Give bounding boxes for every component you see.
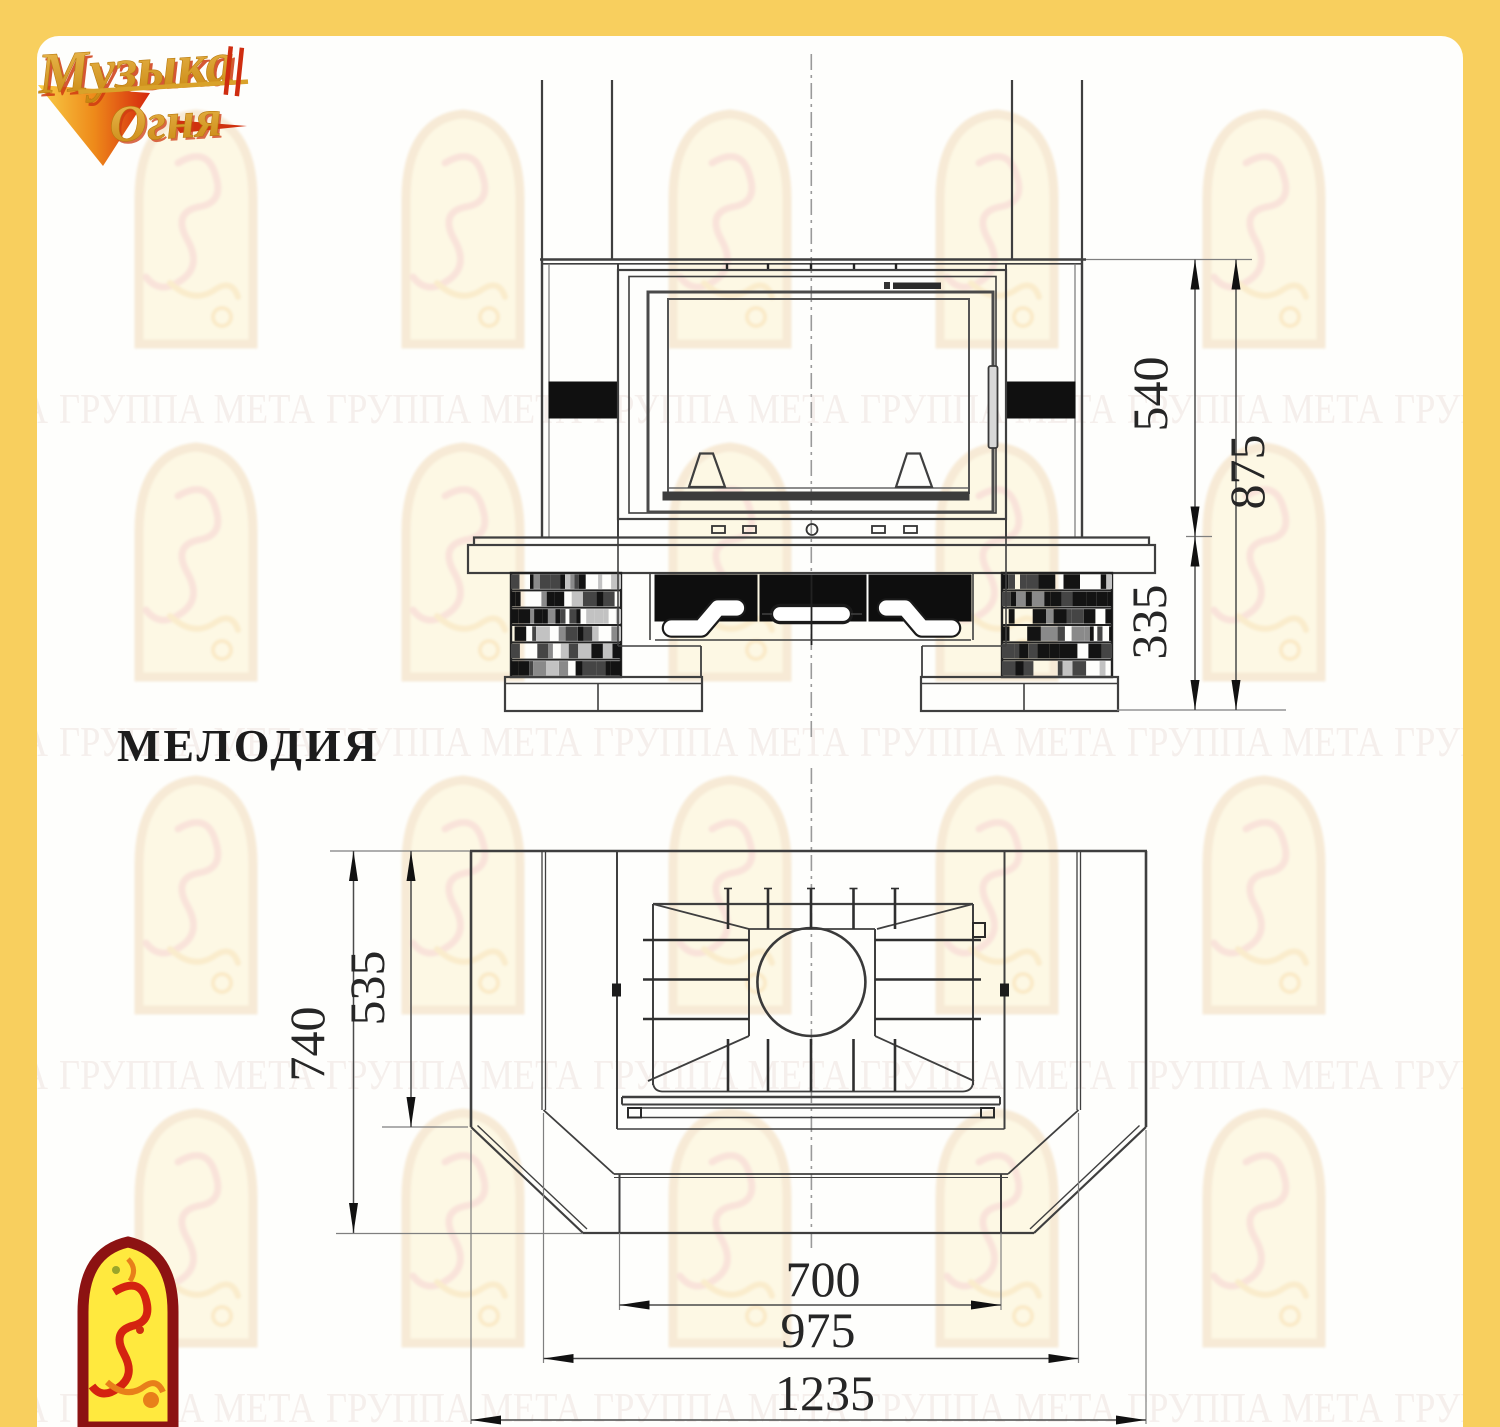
svg-text:335: 335 [1121, 585, 1177, 660]
svg-text:1235: 1235 [775, 1365, 875, 1421]
svg-text:МЕЛОДИЯ: МЕЛОДИЯ [117, 720, 380, 771]
svg-text:Огня: Огня [108, 90, 224, 154]
svg-text:700: 700 [786, 1251, 861, 1307]
svg-text:975: 975 [781, 1302, 856, 1358]
svg-text:875: 875 [1219, 435, 1275, 510]
svg-text:535: 535 [339, 951, 395, 1026]
svg-text:540: 540 [1122, 357, 1178, 432]
svg-text:740: 740 [279, 1007, 335, 1082]
